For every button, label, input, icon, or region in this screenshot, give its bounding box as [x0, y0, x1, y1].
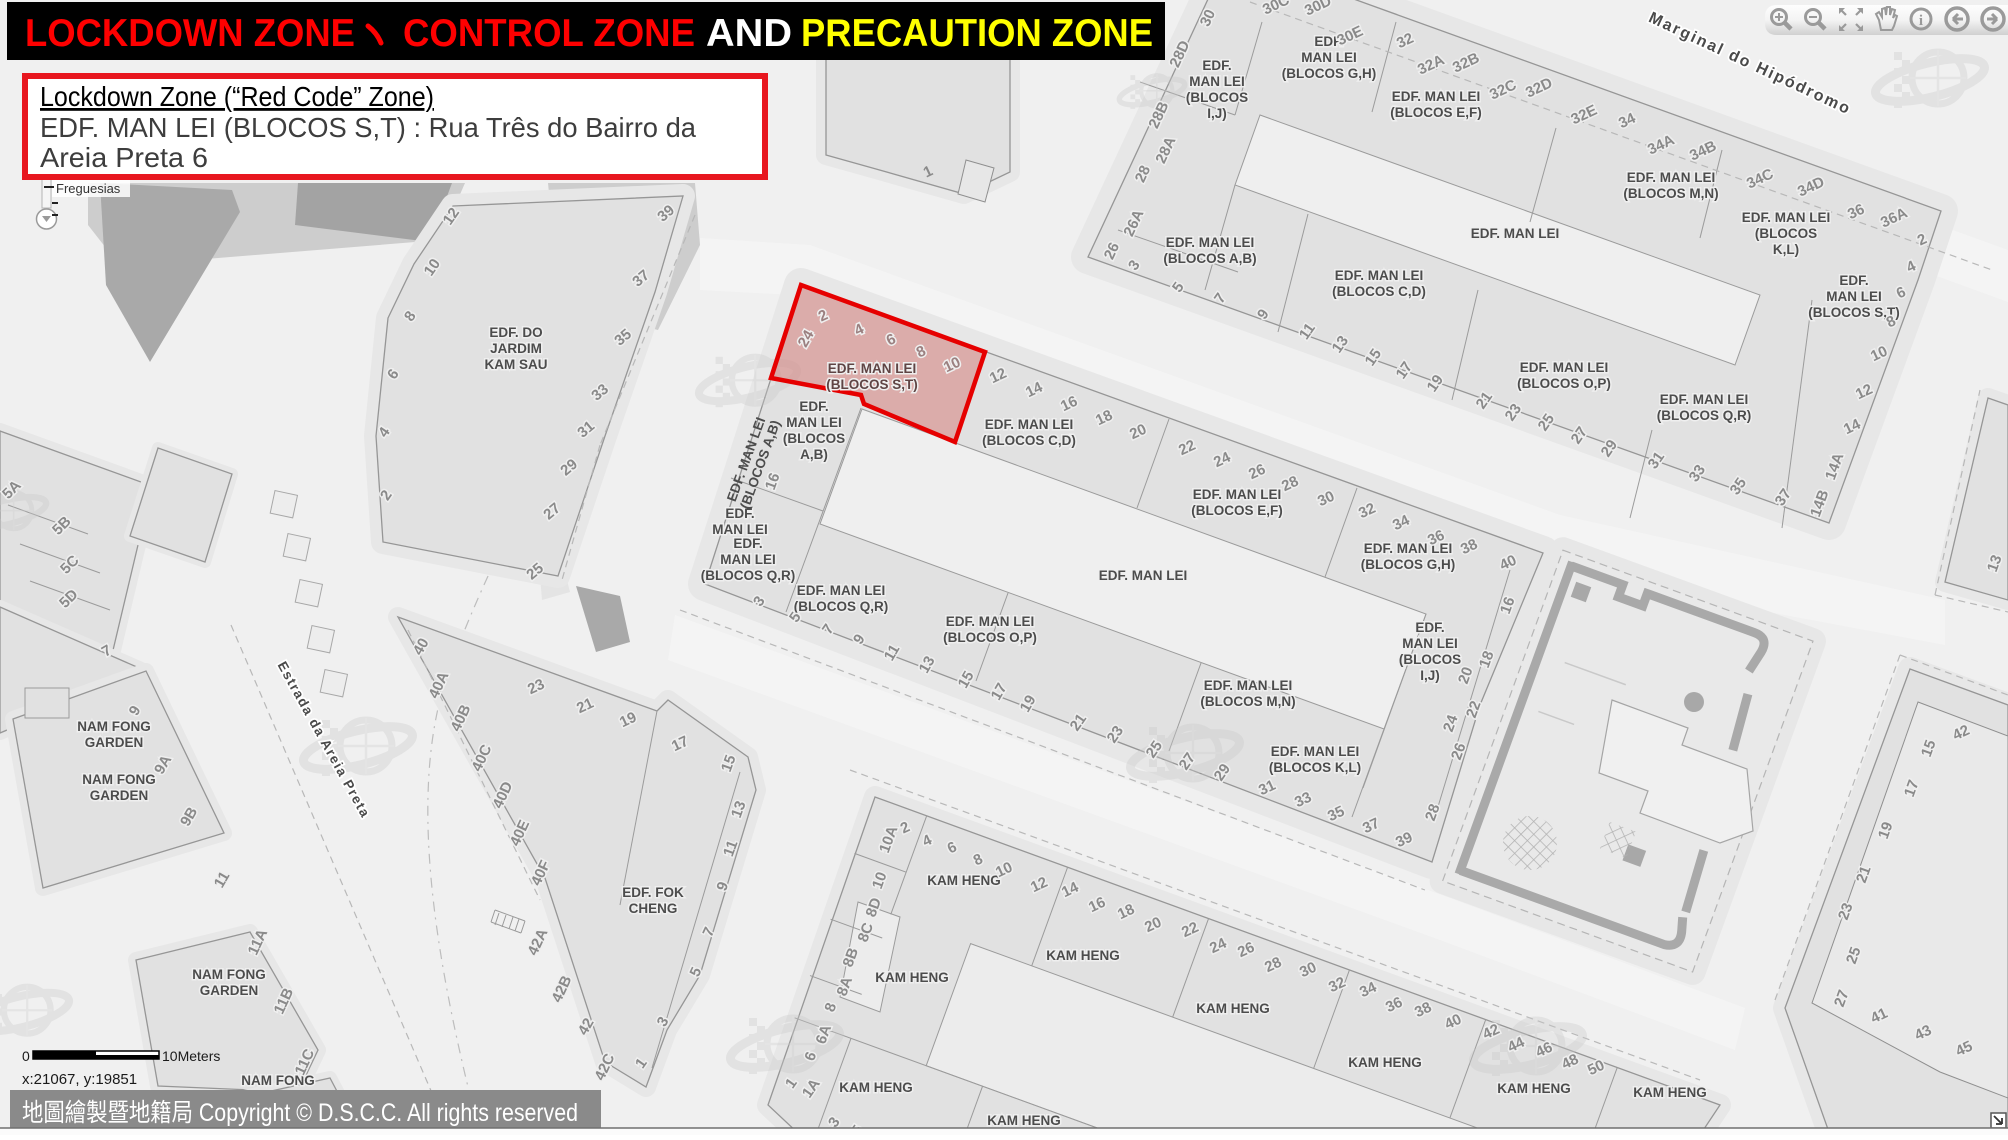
svg-text:AND: AND: [706, 12, 792, 55]
svg-text:MAN LEI: MAN LEI: [1301, 50, 1357, 65]
svg-text:CHENG: CHENG: [629, 901, 678, 916]
svg-text:EDF. MAN LEI: EDF. MAN LEI: [1335, 268, 1424, 283]
svg-text:MAN LEI: MAN LEI: [786, 415, 842, 430]
svg-text:KAM HENG: KAM HENG: [1497, 1081, 1571, 1096]
svg-text:Lockdown Zone (“Red Code” Zone: Lockdown Zone (“Red Code” Zone): [40, 81, 434, 112]
svg-text:i: i: [1919, 13, 1923, 29]
svg-text:EDF. MAN LEI: EDF. MAN LEI: [828, 361, 917, 376]
svg-text:0: 0: [22, 1048, 30, 1064]
svg-text:I,J): I,J): [1207, 106, 1227, 121]
svg-text:(BLOCOS K,L): (BLOCOS K,L): [1269, 760, 1361, 775]
svg-text:EDF.: EDF.: [1415, 620, 1444, 635]
svg-text:EDF. MAN LEI: EDF. MAN LEI: [1099, 568, 1188, 583]
svg-text:GARDEN: GARDEN: [90, 788, 149, 803]
svg-text:EDF.: EDF.: [1839, 273, 1868, 288]
svg-text:KAM HENG: KAM HENG: [1348, 1055, 1422, 1070]
svg-text:KAM HENG: KAM HENG: [987, 1113, 1061, 1128]
svg-text:KAM SAU: KAM SAU: [485, 357, 548, 372]
svg-text:EDF. MAN LEI: EDF. MAN LEI: [797, 583, 886, 598]
svg-text:EDF. MAN LEI: EDF. MAN LEI: [1520, 360, 1609, 375]
svg-text:JARDIM: JARDIM: [490, 341, 542, 356]
svg-text:(BLOCOS: (BLOCOS: [783, 431, 845, 446]
svg-text:KAM HENG: KAM HENG: [927, 873, 1001, 888]
svg-text:EDF. DO: EDF. DO: [489, 325, 542, 340]
svg-text:Areia Preta 6: Areia Preta 6: [40, 142, 208, 173]
svg-text:MAN LEI: MAN LEI: [712, 522, 768, 537]
svg-text:MAN LEI: MAN LEI: [1826, 289, 1882, 304]
svg-text:NAM FONG: NAM FONG: [82, 772, 156, 787]
svg-text:10Meters: 10Meters: [162, 1048, 220, 1064]
svg-text:GARDEN: GARDEN: [200, 983, 259, 998]
svg-text:EDF. MAN LEI: EDF. MAN LEI: [1742, 210, 1831, 225]
svg-text:A,B): A,B): [800, 447, 828, 462]
svg-text:(BLOCOS: (BLOCOS: [1186, 90, 1248, 105]
svg-text:(BLOCOS E,F): (BLOCOS E,F): [1191, 503, 1283, 518]
svg-text:(BLOCOS O,P): (BLOCOS O,P): [1517, 376, 1611, 391]
svg-text:LOCKDOWN ZONE: LOCKDOWN ZONE: [25, 12, 355, 55]
svg-text:EDF. MAN LEI: EDF. MAN LEI: [1392, 89, 1481, 104]
svg-text:(BLOCOS S,T): (BLOCOS S,T): [826, 377, 918, 392]
svg-text:Freguesias: Freguesias: [56, 181, 121, 196]
svg-text:EDF. MAN LEI: EDF. MAN LEI: [1471, 226, 1560, 241]
svg-text:(BLOCOS A,B): (BLOCOS A,B): [1163, 251, 1256, 266]
svg-text:(BLOCOS G,H): (BLOCOS G,H): [1282, 66, 1377, 81]
svg-text:(BLOCOS E,F): (BLOCOS E,F): [1390, 105, 1482, 120]
svg-text:KAM HENG: KAM HENG: [1196, 1001, 1270, 1016]
svg-text:EDF.: EDF.: [799, 399, 828, 414]
svg-text:(BLOCOS: (BLOCOS: [1399, 652, 1461, 667]
svg-text:(BLOCOS O,P): (BLOCOS O,P): [943, 630, 1037, 645]
svg-text:EDF. MAN LEI: EDF. MAN LEI: [946, 614, 1035, 629]
svg-text:EDF. MAN LEI: EDF. MAN LEI: [985, 417, 1074, 432]
svg-text:I,J): I,J): [1420, 668, 1440, 683]
svg-text:MAN LEI: MAN LEI: [720, 552, 776, 567]
svg-text:(BLOCOS G,H): (BLOCOS G,H): [1361, 557, 1456, 572]
svg-text:PRECAUTION ZONE: PRECAUTION ZONE: [801, 12, 1153, 55]
svg-text:EDF. MAN LEI: EDF. MAN LEI: [1660, 392, 1749, 407]
svg-text:MAN LEI: MAN LEI: [1189, 74, 1245, 89]
svg-text:EDF. MAN LEI: EDF. MAN LEI: [1193, 487, 1282, 502]
svg-text:(BLOCOS: (BLOCOS: [1755, 226, 1817, 241]
svg-text:EDF.: EDF.: [733, 536, 762, 551]
svg-text:(BLOCOS C,D): (BLOCOS C,D): [1332, 284, 1426, 299]
svg-text:K,L): K,L): [1773, 242, 1799, 257]
svg-text:EDF. MAN LEI: EDF. MAN LEI: [1271, 744, 1360, 759]
svg-text:CONTROL ZONE: CONTROL ZONE: [403, 12, 695, 55]
svg-text:(BLOCOS M,N): (BLOCOS M,N): [1200, 694, 1295, 709]
svg-text:EDF. MAN LEI (BLOCOS S,T) : Ru: EDF. MAN LEI (BLOCOS S,T) : Rua Três do …: [40, 112, 696, 143]
svg-text:(BLOCOS Q,R): (BLOCOS Q,R): [701, 568, 796, 583]
svg-text:地圖繪製暨地籍局 Copyright © D.S.C.C.: 地圖繪製暨地籍局 Copyright © D.S.C.C. All rights…: [22, 1099, 578, 1127]
svg-text:EDF.: EDF.: [1202, 58, 1231, 73]
svg-text:MAN LEI: MAN LEI: [1402, 636, 1458, 651]
svg-text:KAM HENG: KAM HENG: [1046, 948, 1120, 963]
svg-text:NAM FONG: NAM FONG: [192, 967, 266, 982]
svg-text:EDF. FOK: EDF. FOK: [622, 885, 684, 900]
svg-text:GARDEN: GARDEN: [85, 735, 144, 750]
svg-text:(BLOCOS M,N): (BLOCOS M,N): [1623, 186, 1718, 201]
svg-text:(BLOCOS Q,R): (BLOCOS Q,R): [794, 599, 889, 614]
svg-text:KAM HENG: KAM HENG: [1633, 1085, 1707, 1100]
svg-text:KAM HENG: KAM HENG: [875, 970, 949, 985]
svg-text:EDF. MAN LEI: EDF. MAN LEI: [1204, 678, 1293, 693]
svg-text:KAM HENG: KAM HENG: [839, 1080, 913, 1095]
svg-text:NAM FONG: NAM FONG: [77, 719, 151, 734]
svg-text:EDF. MAN LEI: EDF. MAN LEI: [1166, 235, 1255, 250]
svg-text:(BLOCOS Q,R): (BLOCOS Q,R): [1657, 408, 1752, 423]
svg-text:(BLOCOS C,D): (BLOCOS C,D): [982, 433, 1076, 448]
svg-text:x:21067, y:19851: x:21067, y:19851: [22, 1071, 137, 1088]
svg-text:EDF. MAN LEI: EDF. MAN LEI: [1627, 170, 1716, 185]
